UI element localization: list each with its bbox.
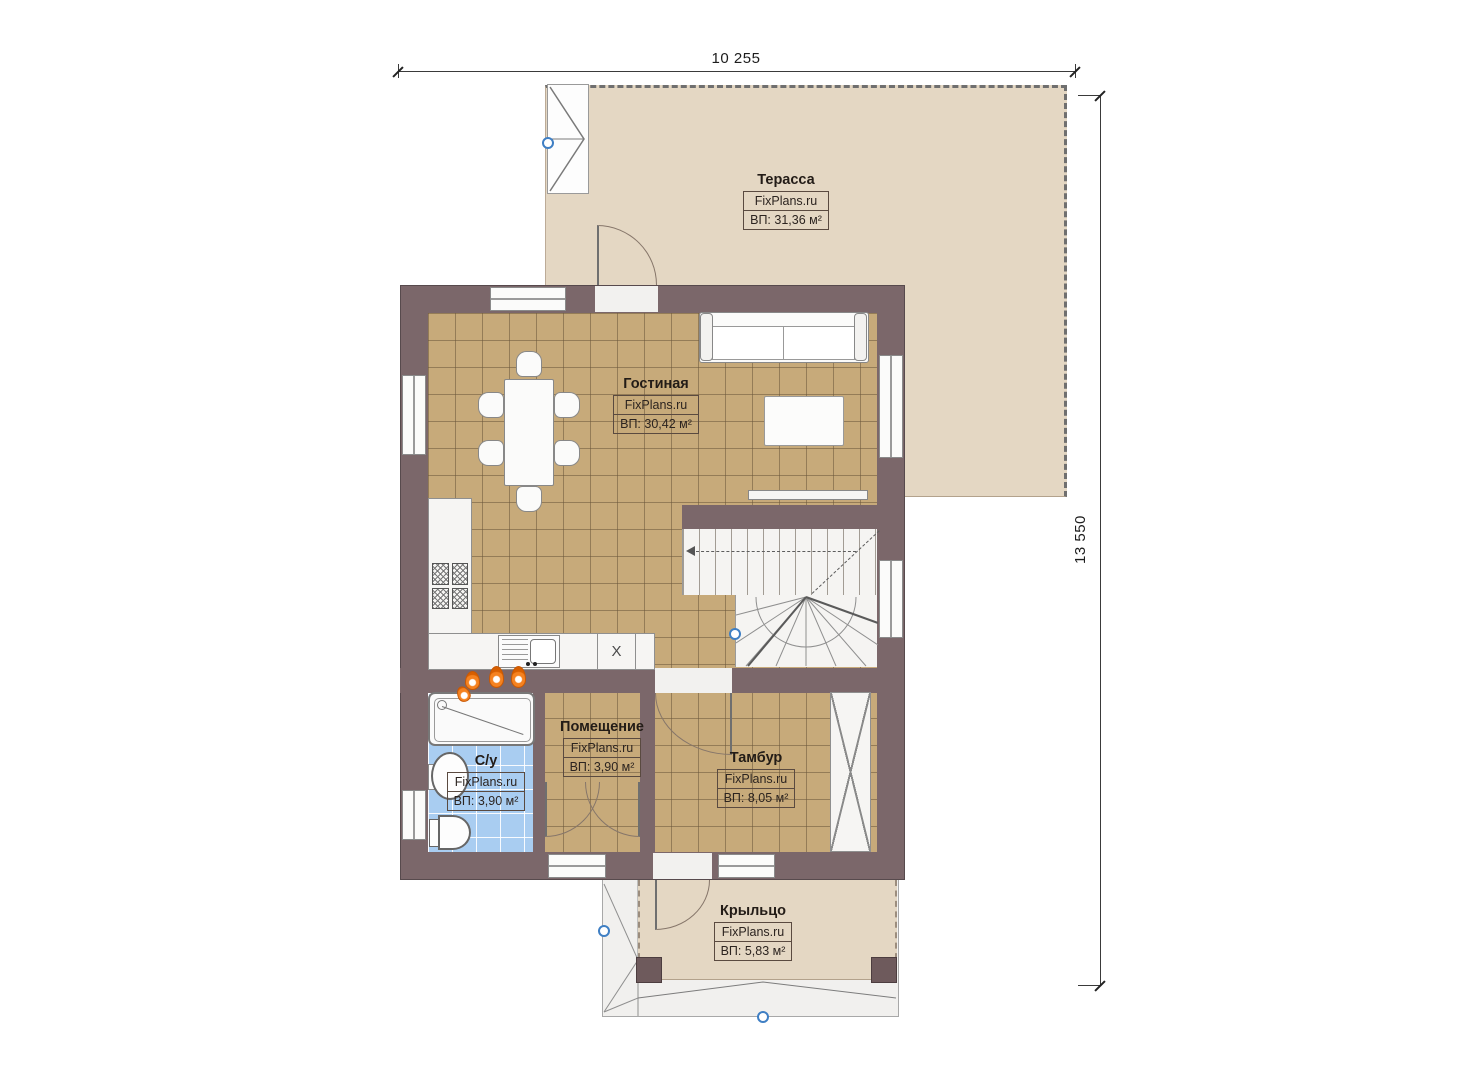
terrace-exterior-stair (547, 84, 589, 194)
sofa-cushion-divider (783, 326, 784, 360)
interior-wall-lower-left (400, 668, 655, 693)
porch-post-right (871, 957, 897, 983)
sofa-armrest (854, 313, 867, 361)
window-right-stairs (879, 560, 903, 638)
dimension-extension-right-bottom (1078, 985, 1100, 986)
dishwasher-unit: X (597, 633, 636, 670)
window-left-living (402, 375, 426, 455)
sofa-armrest (700, 313, 713, 361)
staircase-winder (735, 595, 877, 667)
stair-direction-arrow (686, 546, 695, 556)
dimension-line-top (398, 71, 1075, 72)
window-bottom-vestibule (718, 854, 775, 878)
dimension-width-label: 10 255 (636, 50, 836, 67)
tv-console (748, 490, 868, 500)
vestibule-doorway-threshold (655, 668, 732, 693)
porch-post-left (636, 957, 662, 983)
bathtub (428, 692, 535, 746)
dining-table (504, 379, 554, 486)
level-marker-icon (598, 925, 610, 937)
faucet-icon (533, 662, 537, 666)
sink-drainer (502, 639, 528, 664)
dimension-height-label: 13 550 (1072, 440, 1092, 640)
flame-icon (465, 671, 480, 690)
level-marker-icon (757, 1011, 769, 1023)
window-top-living (490, 287, 566, 311)
level-marker-icon (542, 137, 554, 149)
level-marker-icon (729, 628, 741, 640)
dining-chair (554, 440, 580, 466)
window-left-bathroom (402, 790, 426, 840)
flame-icon (489, 666, 504, 688)
stove-burner-icon (432, 588, 449, 610)
kitchen-sink (498, 635, 560, 668)
stove (430, 561, 470, 611)
entry-door-opening (653, 853, 712, 879)
stair-hall-wall (682, 505, 877, 529)
window-right-living (879, 355, 903, 458)
terrace-door-opening (595, 286, 658, 312)
dining-chair (554, 392, 580, 418)
stove-burner-icon (432, 563, 449, 585)
dining-chair (516, 351, 542, 377)
faucet-icon (526, 662, 530, 666)
staircase-upper-flight (682, 529, 877, 595)
vestibule-wardrobe (830, 692, 871, 852)
staircase-winder-treads (736, 595, 878, 667)
wall-utility-vestibule (640, 693, 655, 852)
dining-chair (478, 440, 504, 466)
dishwasher-mark: X (611, 643, 621, 660)
window-bottom-utility (548, 854, 606, 878)
floor-plan-canvas: 10 255 13 550 (0, 0, 1474, 1080)
stove-burner-icon (452, 563, 469, 585)
terrace-stair-chevron-icon (548, 85, 588, 193)
stove-burner-icon (452, 588, 469, 610)
sofa (699, 312, 869, 363)
dimension-extension-right-top (1078, 95, 1100, 96)
flame-icon (511, 666, 526, 688)
bathroom-sink (431, 752, 469, 800)
dimension-line-right (1100, 95, 1101, 985)
coffee-table (764, 396, 844, 446)
stair-walk-line (696, 551, 856, 552)
interior-wall-lower-right (732, 668, 877, 693)
bathtub-drain-icon (437, 700, 447, 710)
dining-chair (516, 486, 542, 512)
dining-chair (478, 392, 504, 418)
sink-bowl (530, 639, 556, 664)
